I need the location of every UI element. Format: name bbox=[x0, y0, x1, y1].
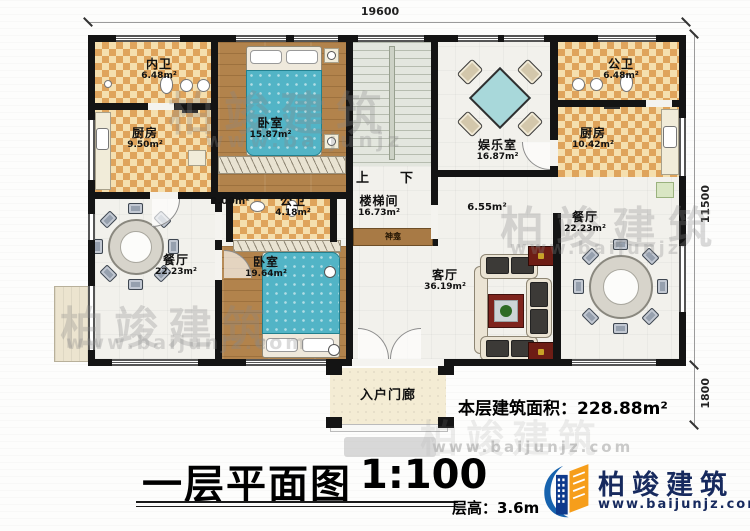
room-label-porch: 入户门廊 bbox=[330, 388, 446, 403]
dimension-line-top bbox=[88, 22, 686, 23]
room-label-bath-middle: 公卫4.18m² bbox=[258, 194, 328, 219]
room-label-gameroom: 娱乐室16.87m² bbox=[460, 138, 535, 163]
window bbox=[504, 35, 544, 42]
room-label-bedroom-bottom: 卧室19.64m² bbox=[231, 255, 301, 280]
brand-site: www.baijunjz.com bbox=[598, 497, 750, 512]
wall-interior bbox=[211, 35, 218, 203]
window bbox=[572, 359, 656, 366]
floor-area-label: 本层建筑面积： bbox=[458, 399, 577, 419]
window bbox=[679, 118, 686, 176]
cabinet-knob bbox=[538, 253, 544, 259]
cabinet-knob bbox=[538, 349, 544, 355]
floor-area-summary: 本层建筑面积：228.88m² bbox=[458, 394, 668, 419]
pillow-icon bbox=[286, 50, 318, 64]
title-underline bbox=[136, 501, 458, 507]
chair-icon bbox=[168, 239, 179, 254]
room-label-dining-left: 餐厅22.23m² bbox=[141, 253, 211, 278]
dimension-line-right-porch bbox=[694, 366, 695, 426]
floor-area-value: 228.88m² bbox=[577, 399, 668, 419]
room-label-dining-right: 餐厅22.23m² bbox=[552, 210, 618, 235]
chair-icon bbox=[613, 323, 628, 334]
window bbox=[598, 35, 656, 42]
lamp-icon bbox=[328, 344, 340, 356]
porch-post bbox=[438, 417, 454, 428]
chair-icon bbox=[128, 279, 143, 290]
window bbox=[294, 35, 338, 42]
wall-outer-right bbox=[679, 35, 686, 366]
dimension-height-porch: 1800 bbox=[699, 378, 712, 409]
chair-icon bbox=[573, 279, 584, 294]
door-opening bbox=[215, 250, 222, 280]
room-label-bath-topright: 公卫6.48m² bbox=[586, 57, 656, 82]
floor-height: 层高：3.6m bbox=[452, 497, 539, 518]
wall-interior bbox=[550, 166, 558, 177]
door-opening bbox=[431, 205, 438, 239]
window bbox=[246, 359, 326, 366]
stair-rail bbox=[389, 46, 395, 160]
door-opening bbox=[646, 100, 672, 107]
window bbox=[236, 35, 286, 42]
lamp-icon bbox=[327, 137, 336, 146]
area-label-corridor-right: 6.55m² bbox=[459, 202, 515, 213]
floor-drain-icon bbox=[104, 80, 112, 88]
chair-icon bbox=[128, 203, 143, 214]
dimension-height-main: 11500 bbox=[699, 185, 712, 223]
shrine-shelf: 神龛 bbox=[353, 228, 433, 246]
room-label-bedroom-top: 卧室15.87m² bbox=[238, 116, 303, 141]
lamp-icon bbox=[324, 266, 336, 278]
pillow-icon bbox=[266, 338, 298, 352]
sink-icon bbox=[197, 79, 210, 92]
door-opening bbox=[150, 192, 178, 199]
sofa-cushion bbox=[530, 309, 548, 334]
chair-icon bbox=[657, 279, 668, 294]
window bbox=[88, 120, 95, 180]
bed-blanket bbox=[246, 70, 322, 156]
balcony-left bbox=[54, 286, 90, 362]
window bbox=[88, 214, 95, 240]
sofa-cushion bbox=[486, 340, 509, 357]
pillow-icon bbox=[250, 50, 282, 64]
wall-interior bbox=[330, 192, 337, 242]
window bbox=[679, 246, 686, 312]
window bbox=[116, 35, 180, 42]
kitchen-sink-icon bbox=[663, 126, 677, 148]
sofa-cushion bbox=[486, 257, 509, 274]
door-opening bbox=[148, 103, 174, 110]
plant-icon bbox=[656, 182, 674, 198]
entry-opening bbox=[352, 359, 444, 366]
room-label-stairwell: 楼梯间16.73m² bbox=[344, 194, 414, 219]
chair-icon bbox=[613, 239, 628, 250]
window bbox=[112, 359, 198, 366]
brand-logo-icon bbox=[538, 460, 592, 524]
wall-interior bbox=[438, 170, 550, 177]
plan-scale: 1:100 bbox=[360, 452, 487, 498]
room-label-bath-topleft: 内卫6.48m² bbox=[124, 57, 194, 82]
door-opening bbox=[550, 140, 558, 166]
lamp-icon bbox=[327, 51, 336, 60]
sink-icon bbox=[572, 78, 585, 91]
window bbox=[88, 286, 95, 350]
room-label-kitchen-left: 厨房9.50m² bbox=[110, 126, 180, 151]
wardrobe-icon bbox=[233, 240, 341, 252]
porch-steps bbox=[330, 424, 448, 432]
window bbox=[358, 35, 424, 42]
dimension-width: 19600 bbox=[350, 5, 410, 18]
plant-icon bbox=[500, 305, 512, 317]
dimension-line-right-main bbox=[694, 35, 695, 366]
stairs-down-label: 下 bbox=[400, 167, 413, 186]
wall-interior bbox=[550, 35, 558, 140]
room-label-kitchen-right: 厨房10.42m² bbox=[558, 126, 628, 151]
room-label-living: 客厅36.19m² bbox=[410, 268, 480, 293]
kitchen-sink-icon bbox=[96, 128, 109, 150]
wall-interior bbox=[553, 213, 561, 366]
fridge-icon bbox=[188, 150, 206, 166]
porch-post bbox=[326, 364, 342, 375]
porch-post bbox=[326, 417, 342, 428]
dining-table-top bbox=[603, 269, 639, 305]
wardrobe-icon bbox=[218, 156, 346, 174]
door-opening bbox=[215, 212, 222, 240]
stairs-up-label: 上 bbox=[356, 167, 369, 186]
area-label-corridor-left: 2.00m² bbox=[202, 196, 258, 207]
sofa-cushion bbox=[530, 282, 548, 307]
window bbox=[458, 35, 498, 42]
kitchen-counter bbox=[95, 112, 111, 190]
floorplan-page: 19600 11500 1800 bbox=[0, 0, 750, 531]
